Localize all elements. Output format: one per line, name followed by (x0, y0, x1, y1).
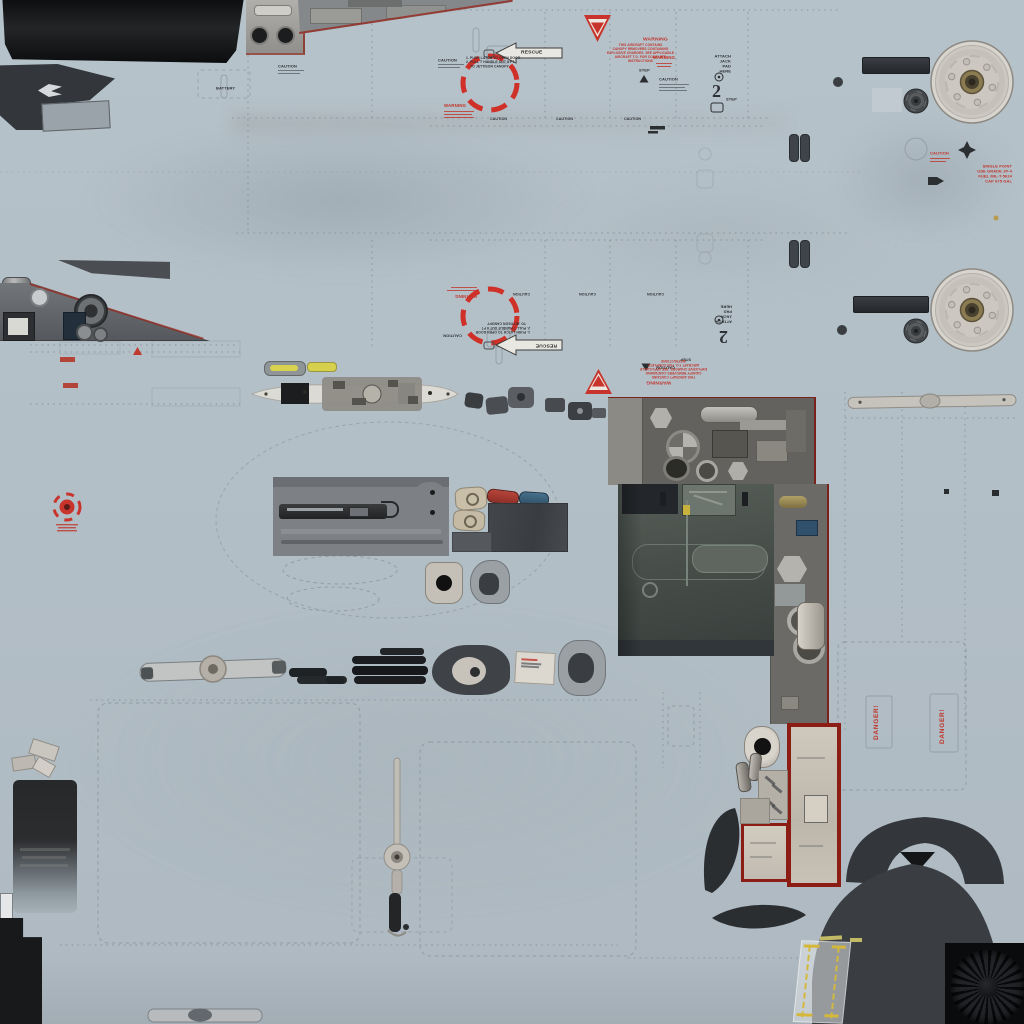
missile-rail (252, 377, 458, 411)
canopy-bow-strip (0, 0, 246, 63)
danger-label: DANGER! (872, 705, 880, 740)
step-label: STEP (726, 97, 737, 102)
micro-text-red (930, 158, 950, 159)
micro-text (659, 84, 689, 85)
small-parts-cluster (464, 387, 606, 420)
small-port (837, 325, 847, 335)
door-scuff (750, 856, 772, 858)
vent-slot (789, 134, 799, 162)
bay-inset-detail (693, 494, 722, 505)
micro-text-red (444, 117, 474, 118)
yellow-dash-line (830, 947, 840, 1019)
patch-ring (466, 492, 480, 506)
micro-text (278, 70, 304, 71)
light-patch (872, 88, 902, 112)
bracket-hole (436, 575, 452, 591)
red-triangle-small (133, 347, 142, 355)
wedge-part (348, 0, 402, 7)
greeble-dark-disc (663, 456, 690, 481)
micro-text (278, 73, 300, 74)
push-rod (281, 540, 443, 544)
dark-bar (862, 57, 930, 74)
greeble-hex-nut (650, 408, 672, 428)
console-gear-small (93, 327, 108, 342)
yellow-dash-line (801, 946, 811, 1018)
placard-line (521, 658, 537, 661)
console-gear-small (76, 324, 93, 341)
c-part (432, 645, 510, 695)
greeble-ring (696, 460, 718, 482)
formation-light (270, 365, 298, 371)
wheel-hub-bottom (904, 319, 928, 343)
vent-hole (252, 28, 267, 43)
door-scuff (799, 845, 823, 847)
micro-text (438, 67, 460, 68)
fuel-point-stencil: SINGLE POINT USE GRADE JP-4 FUEL MIL-T-5… (972, 164, 1012, 184)
bracket-part (425, 562, 463, 604)
micro-text-red (656, 63, 672, 64)
bay-shadow (618, 484, 642, 656)
ghost-label (20, 864, 68, 867)
ghost-label (22, 856, 66, 859)
jettison-instructions: 1. PUSH LATCH TO OPEN DOOR 2. PULL T HAN… (466, 56, 520, 69)
greeble-block (712, 430, 748, 458)
red-micro-label (60, 357, 75, 362)
patch-ring (464, 515, 478, 529)
panel-band (281, 529, 441, 534)
rail-stud-strip (287, 508, 343, 511)
c-part-center (452, 657, 486, 685)
vent-hole (278, 28, 293, 43)
micro-text-red (930, 161, 946, 162)
vent-slot (789, 240, 799, 268)
attach-jack-mirror: ATTACH JACK PAD HERE 2 (702, 296, 736, 348)
console-knob (30, 288, 49, 307)
greeble-block (786, 410, 806, 452)
caution-row: CAUTION (490, 117, 507, 122)
rescue-label: RESCUE (521, 49, 542, 55)
console-instrument-box (3, 312, 35, 341)
bottom-strip-blade (148, 1009, 262, 1023)
micro-text (438, 64, 464, 65)
gold-screw (994, 216, 999, 221)
worn-plate (740, 798, 770, 824)
warning-triangle-top (584, 15, 611, 42)
dark-texture-plate (488, 503, 568, 552)
tan-patch (452, 509, 485, 532)
battery-label: BATTERY (216, 86, 235, 91)
micro-text-red (657, 66, 671, 67)
wheel-hub-top (904, 89, 928, 113)
red-frame-door-tall (787, 723, 841, 887)
canopy-warning-title: WARNING (643, 36, 668, 42)
caution-label: CAUTION (438, 58, 457, 63)
caution-label: CAUTION (513, 292, 530, 297)
greeble-column-right (770, 484, 829, 724)
rescue-roundel-left (54, 494, 80, 531)
fuel-port-icon (928, 177, 944, 185)
bay-yellow-fitting (683, 505, 690, 515)
red-micro-label (63, 383, 78, 388)
vent-block (246, 0, 305, 55)
hex-fitting (777, 556, 807, 582)
caution-row-mirror: CAUTION (566, 288, 596, 296)
bay-slot (660, 492, 666, 506)
caution-step: CAUTION (659, 77, 678, 82)
greeble-left-column (608, 398, 643, 485)
rounded-fairing (411, 482, 449, 528)
warning-small-center: WARNING (653, 55, 675, 61)
intake-lip-shape (704, 808, 739, 893)
caution-mirror-left: CAUTION (434, 330, 462, 338)
step-pad-outline (711, 103, 723, 112)
jettison-instructions: 1. PUSH LATCH TO OPEN DOOR 2. PULL T HAN… (476, 321, 530, 334)
texture-atlas: BATTERY CAUTION CAUTION 1. PUSH LATCH TO… (0, 0, 1024, 1024)
rivet-lines (0, 10, 1018, 958)
jack-number: 2 (719, 326, 728, 349)
vent-slot (254, 5, 292, 16)
yellow-mark (796, 1013, 812, 1017)
vent-slot (800, 240, 810, 268)
bay-slot (742, 492, 748, 506)
gear-strut (384, 758, 410, 936)
linkage-bar (140, 653, 287, 684)
main-wheel-top (931, 41, 1013, 123)
micro-text-red (444, 111, 474, 112)
canopy-warning-title: WARNING (646, 380, 671, 386)
greeble-block (740, 420, 786, 430)
step-label: STEP (639, 68, 650, 73)
canopy-warning-body: THIS AIRCRAFT CONTAINS CANOPY REMOVERS C… (640, 359, 707, 379)
formation-light (307, 362, 337, 372)
dome-part (558, 640, 606, 696)
dome-core (568, 653, 594, 683)
micro-text (659, 90, 687, 91)
caution-row-mirror: CAUTION (500, 288, 530, 296)
rescue-mirror-label: RESCUE (521, 340, 557, 349)
greeble-block (756, 440, 788, 462)
hash-mark (771, 783, 782, 793)
black-rods (289, 648, 428, 684)
elbow-part (470, 560, 510, 604)
dark-texture-plate (452, 532, 492, 552)
vent-slot-pair (789, 240, 808, 266)
blue-module (796, 520, 818, 536)
attach-jack-label: ATTACH JACK PAD HERE (716, 304, 732, 324)
caution-label: CAUTION (278, 64, 297, 69)
fairing-dot (430, 510, 435, 515)
bay-inset-box (682, 484, 736, 516)
bay-inset-detail (689, 491, 727, 493)
fan-spinner (978, 977, 998, 997)
greeble-panel (608, 397, 816, 485)
access-port-outline (905, 138, 927, 160)
instrument-screen (8, 318, 28, 335)
door-latch (804, 795, 828, 823)
placard-box (514, 651, 556, 685)
gear-bay (618, 484, 774, 656)
gradient-panel (13, 780, 77, 913)
caution-row-mirror: CAUTION (634, 288, 664, 296)
caution-row: CAUTION (624, 117, 641, 122)
yellow-strip (850, 938, 862, 942)
rail-hook (381, 501, 399, 518)
yellow-mark (824, 1014, 838, 1017)
dark-bar (853, 296, 929, 313)
vent-slot (800, 134, 810, 162)
brass-cylinder (779, 496, 807, 508)
canopy-warning-mirror: WARNING THIS AIRCRAFT CONTAINS CANOPY RE… (607, 358, 707, 386)
canopy-glass-panel (793, 940, 852, 1023)
jettison-mirror: 1. PUSH LATCH TO OPEN DOOR 2. PULL T HAN… (468, 318, 530, 334)
rail-block (349, 507, 369, 517)
elbow-core (479, 573, 499, 595)
micro-text-red (451, 287, 477, 288)
caution-fuel: CAUTION (930, 151, 949, 156)
main-wheel-bottom (931, 269, 1013, 351)
warning-label: WARNING (455, 294, 477, 300)
warning-small-left: WARNING (444, 103, 466, 109)
actuator-blade-right (848, 393, 1016, 410)
red-frame-door-small (741, 823, 789, 882)
caution-row: CAUTION (556, 117, 573, 122)
placard-line (521, 665, 539, 668)
fairing-dot (430, 490, 435, 495)
caution-label: CAUTION (647, 292, 664, 297)
greeble-hex (728, 462, 748, 480)
hash-mark (771, 804, 782, 814)
jack-number: 2 (712, 80, 721, 103)
bay-ring (642, 582, 658, 598)
danger-label: DANGER! (938, 709, 946, 744)
star-fastener-icon (958, 141, 976, 159)
rescue-label: RESCUE (536, 343, 557, 349)
warning-small-left-mirror: WARNING (437, 281, 477, 299)
micro-text-red (447, 290, 477, 291)
wedge-part (310, 8, 362, 24)
micro-text (659, 87, 685, 88)
attach-jack-label: ATTACH JACK PAD HERE (706, 54, 731, 74)
step-triangle-icon (640, 75, 649, 83)
tan-patch (454, 486, 488, 511)
caution-label: CAUTION (443, 333, 462, 338)
formation-light-housing (264, 361, 306, 376)
yellow-mark (804, 944, 820, 948)
caution-label: CAUTION (579, 292, 596, 297)
small-fitting (781, 696, 799, 710)
small-port (833, 77, 843, 87)
yellow-mark (832, 945, 846, 948)
ghost-label (20, 848, 70, 851)
light-cylinder (797, 602, 825, 650)
engine-fan-tile (945, 943, 1024, 1024)
seat-rail (279, 504, 387, 519)
intake-lip-shape (712, 905, 806, 929)
bay-cylinder (692, 545, 768, 573)
door-scuff (797, 757, 825, 759)
vent-slot-pair (789, 134, 808, 160)
micro-text-red (444, 114, 472, 115)
door-scuff (750, 842, 776, 844)
c-part-dot (470, 667, 480, 677)
glareshield-inset (41, 100, 110, 132)
